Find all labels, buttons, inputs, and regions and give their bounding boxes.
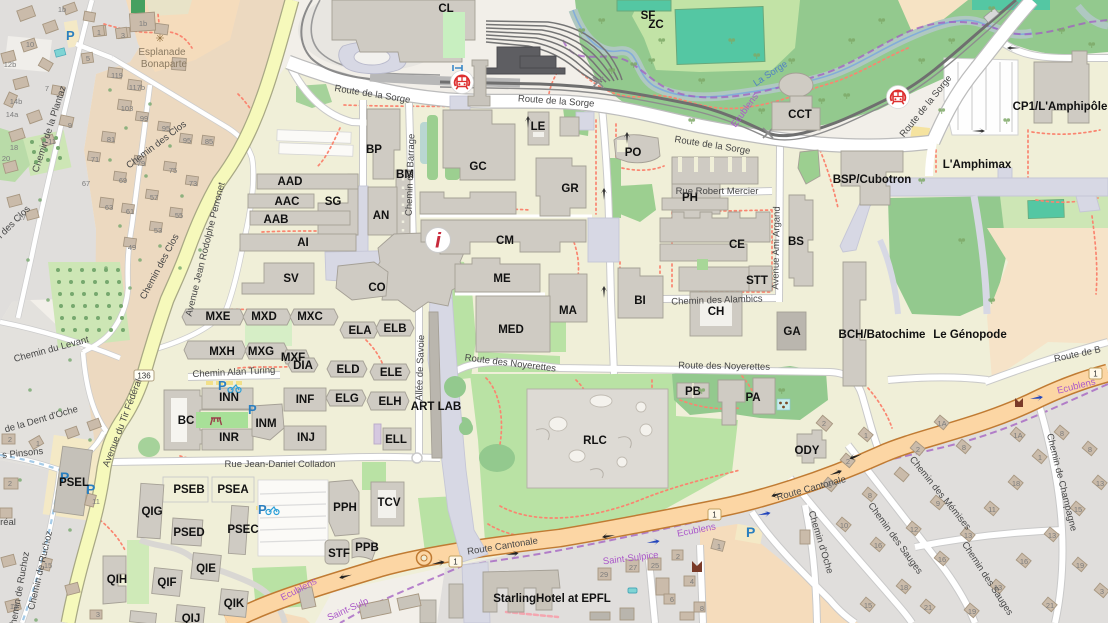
svg-text:P: P — [248, 402, 257, 417]
svg-text:QIH: QIH — [107, 574, 127, 586]
svg-text:SG: SG — [325, 196, 342, 208]
svg-text:63: 63 — [105, 203, 113, 212]
svg-text:AAC: AAC — [275, 196, 300, 208]
svg-text:2: 2 — [676, 552, 680, 561]
svg-text:PSEB: PSEB — [173, 484, 204, 496]
svg-text:BSP/Cubotron: BSP/Cubotron — [833, 174, 912, 186]
svg-text:INR: INR — [219, 432, 240, 444]
svg-text:QIG: QIG — [141, 506, 162, 518]
svg-text:PA: PA — [745, 392, 760, 404]
svg-text:BI: BI — [634, 295, 646, 307]
svg-text:PPH: PPH — [333, 502, 357, 514]
svg-text:8: 8 — [868, 491, 872, 500]
svg-text:8: 8 — [1060, 429, 1064, 438]
svg-text:55: 55 — [175, 211, 183, 220]
svg-text:P: P — [258, 502, 267, 517]
svg-text:12: 12 — [910, 525, 918, 534]
svg-text:20: 20 — [2, 154, 10, 163]
svg-text:Esplanade: Esplanade — [138, 47, 186, 58]
svg-text:19: 19 — [1076, 561, 1084, 570]
svg-text:QIE: QIE — [196, 563, 216, 575]
svg-text:MXG: MXG — [248, 346, 274, 358]
svg-text:3: 3 — [121, 31, 125, 40]
svg-text:MXD: MXD — [251, 311, 277, 323]
svg-text:13: 13 — [1048, 531, 1056, 540]
svg-text:16: 16 — [1020, 557, 1028, 566]
svg-text:11: 11 — [92, 497, 100, 506]
svg-text:1: 1 — [36, 439, 40, 448]
svg-text:GA: GA — [783, 326, 800, 338]
svg-text:119: 119 — [111, 71, 123, 80]
svg-text:BS: BS — [788, 236, 804, 248]
svg-text:1: 1 — [864, 431, 868, 440]
svg-text:ELG: ELG — [335, 393, 359, 405]
svg-text:✳: ✳ — [155, 33, 164, 45]
svg-text:Allée de Savoie: Allée de Savoie — [414, 335, 427, 401]
svg-text:1: 1 — [717, 542, 721, 551]
svg-text:MED: MED — [498, 324, 524, 336]
svg-text:STF: STF — [328, 548, 350, 560]
svg-text:2: 2 — [916, 445, 920, 454]
svg-text:ELH: ELH — [379, 396, 402, 408]
svg-text:13: 13 — [964, 531, 972, 540]
svg-text:ART LAB: ART LAB — [411, 401, 461, 413]
svg-text:21: 21 — [1046, 601, 1054, 610]
svg-text:CCT: CCT — [788, 109, 812, 121]
svg-text:8: 8 — [1088, 445, 1092, 454]
svg-text:67: 67 — [82, 179, 90, 188]
svg-text:Rue Jean-Daniel Colladon: Rue Jean-Daniel Colladon — [225, 459, 336, 470]
svg-text:57: 57 — [150, 193, 158, 202]
svg-text:13: 13 — [994, 583, 1002, 592]
svg-text:8: 8 — [700, 604, 704, 613]
svg-text:ODY: ODY — [795, 445, 820, 457]
svg-text:ME: ME — [493, 273, 511, 285]
svg-text:SV: SV — [283, 273, 299, 285]
svg-text:1: 1 — [453, 558, 458, 567]
svg-text:9: 9 — [68, 121, 72, 130]
svg-text:136: 136 — [137, 372, 151, 381]
svg-text:PSEC: PSEC — [227, 524, 258, 536]
svg-text:P: P — [218, 378, 227, 393]
svg-text:INN: INN — [219, 392, 239, 404]
svg-text:12b: 12b — [4, 60, 17, 69]
svg-text:6: 6 — [828, 481, 832, 490]
svg-text:PO: PO — [625, 147, 642, 159]
svg-text:1b: 1b — [58, 5, 66, 14]
svg-text:11: 11 — [988, 505, 996, 514]
svg-text:75: 75 — [169, 166, 177, 175]
svg-text:CO: CO — [368, 282, 385, 294]
svg-text:7: 7 — [45, 84, 49, 93]
svg-text:79: 79 — [137, 159, 145, 168]
svg-text:CH: CH — [708, 306, 725, 318]
svg-text:Rue Robert Mercier: Rue Robert Mercier — [676, 186, 759, 197]
svg-text:1: 1 — [712, 511, 717, 520]
svg-text:14b: 14b — [10, 97, 23, 106]
svg-text:4: 4 — [690, 577, 694, 586]
svg-text:BCH/Batochime: BCH/Batochime — [839, 329, 926, 341]
svg-text:18: 18 — [1012, 479, 1020, 488]
svg-text:117b: 117b — [129, 83, 145, 92]
svg-text:ELE: ELE — [380, 367, 403, 379]
svg-text:2: 2 — [8, 435, 12, 444]
svg-text:2: 2 — [8, 479, 12, 488]
svg-text:18: 18 — [900, 583, 908, 592]
svg-text:StarlingHotel at EPFL: StarlingHotel at EPFL — [493, 593, 611, 605]
svg-text:29: 29 — [600, 570, 608, 579]
svg-text:81: 81 — [107, 135, 115, 144]
svg-text:CE: CE — [729, 239, 745, 251]
svg-text:INF: INF — [296, 394, 315, 406]
svg-text:QIF: QIF — [157, 577, 176, 589]
svg-text:95: 95 — [183, 136, 191, 145]
svg-text:1b: 1b — [139, 19, 147, 28]
svg-text:103: 103 — [121, 104, 134, 113]
svg-text:RLC: RLC — [583, 435, 607, 447]
svg-text:AAB: AAB — [264, 214, 289, 226]
svg-text:14a: 14a — [6, 110, 19, 119]
svg-text:PSEA: PSEA — [217, 484, 248, 496]
svg-text:15: 15 — [44, 561, 52, 570]
svg-text:53: 53 — [154, 226, 162, 235]
svg-text:27: 27 — [629, 563, 637, 572]
svg-text:MA: MA — [559, 305, 577, 317]
svg-text:69: 69 — [119, 176, 127, 185]
svg-text:AN: AN — [373, 210, 390, 222]
svg-text:ELB: ELB — [384, 323, 407, 335]
svg-text:Le Génopode: Le Génopode — [933, 329, 1006, 341]
svg-text:49: 49 — [128, 243, 136, 252]
svg-text:QIK: QIK — [224, 598, 245, 610]
svg-text:15: 15 — [864, 601, 872, 610]
svg-text:P: P — [66, 28, 75, 43]
svg-text:5: 5 — [86, 54, 90, 63]
svg-text:ZC: ZC — [648, 19, 663, 31]
svg-text:21: 21 — [924, 603, 932, 612]
svg-text:STT: STT — [746, 275, 768, 287]
svg-text:PB: PB — [685, 386, 701, 398]
svg-text:25: 25 — [651, 561, 659, 570]
svg-text:ELD: ELD — [337, 364, 360, 376]
svg-text:CL: CL — [438, 3, 453, 15]
svg-text:8: 8 — [962, 443, 966, 452]
svg-text:CP1/L'Amphipôle: CP1/L'Amphipôle — [1013, 101, 1108, 113]
svg-text:3: 3 — [1100, 587, 1104, 596]
svg-text:10: 10 — [840, 521, 848, 530]
svg-text:71: 71 — [91, 155, 99, 164]
svg-text:95: 95 — [162, 124, 170, 133]
svg-text:16: 16 — [874, 541, 882, 550]
svg-text:19: 19 — [10, 602, 18, 611]
svg-text:QIJ: QIJ — [182, 613, 201, 623]
svg-text:TCV: TCV — [378, 497, 401, 509]
svg-text:BP: BP — [366, 144, 382, 156]
svg-text:1A: 1A — [937, 419, 946, 428]
svg-text:13: 13 — [1096, 479, 1104, 488]
svg-text:18: 18 — [10, 143, 18, 152]
svg-text:PSED: PSED — [173, 527, 204, 539]
svg-text:2: 2 — [846, 457, 850, 466]
svg-text:85: 85 — [205, 137, 213, 146]
svg-text:1A: 1A — [1013, 431, 1022, 440]
svg-text:BC: BC — [178, 415, 195, 427]
svg-text:INM: INM — [255, 418, 276, 430]
svg-text:DIA: DIA — [293, 360, 313, 372]
svg-text:Avenue Ami Argand: Avenue Ami Argand — [770, 206, 782, 289]
svg-text:99: 99 — [140, 114, 148, 123]
svg-text:AI: AI — [297, 237, 309, 249]
svg-text:ELA: ELA — [349, 325, 372, 337]
svg-text:Bonaparte: Bonaparte — [141, 59, 188, 70]
svg-text:15: 15 — [1074, 505, 1082, 514]
svg-text:Route des Noyerettes: Route des Noyerettes — [678, 360, 770, 373]
svg-text:PPB: PPB — [355, 542, 379, 554]
svg-text:1: 1 — [1038, 453, 1042, 462]
svg-text:LE: LE — [531, 121, 546, 133]
svg-text:10: 10 — [26, 40, 34, 49]
svg-text:73: 73 — [189, 179, 197, 188]
svg-text:1: 1 — [97, 28, 101, 37]
svg-text:61: 61 — [126, 207, 134, 216]
svg-text:MXH: MXH — [209, 346, 235, 358]
svg-text:CM: CM — [496, 235, 514, 247]
svg-text:PSEL: PSEL — [59, 477, 89, 489]
svg-text:AAD: AAD — [278, 176, 303, 188]
svg-text:MXE: MXE — [206, 311, 231, 323]
svg-text:P: P — [746, 524, 755, 540]
svg-text:MXC: MXC — [297, 311, 323, 323]
svg-text:2: 2 — [822, 419, 826, 428]
svg-text:ELL: ELL — [385, 434, 407, 446]
svg-text:GR: GR — [561, 183, 579, 195]
svg-text:16: 16 — [938, 555, 946, 564]
svg-text:INJ: INJ — [297, 432, 315, 444]
svg-text:17: 17 — [18, 213, 26, 222]
svg-text:réal: réal — [0, 517, 16, 528]
svg-text:19: 19 — [968, 607, 976, 616]
svg-text:9: 9 — [936, 499, 940, 508]
svg-text:3: 3 — [96, 610, 100, 619]
svg-text:L'Amphimax: L'Amphimax — [943, 159, 1012, 171]
svg-text:6: 6 — [670, 595, 674, 604]
svg-text:GC: GC — [469, 161, 486, 173]
